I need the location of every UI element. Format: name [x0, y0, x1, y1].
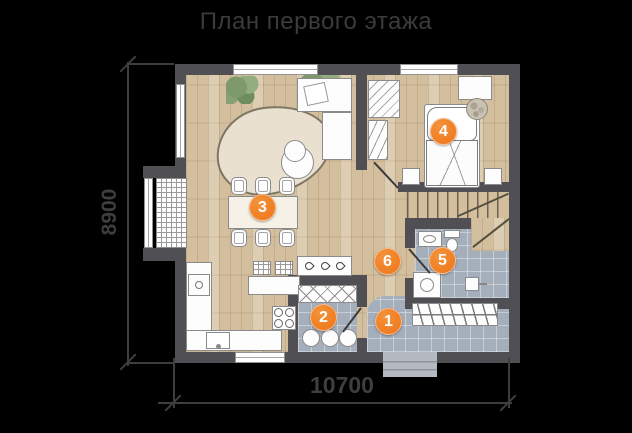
- bay-wall-top: [143, 166, 186, 178]
- dimension-label-width: 10700: [242, 372, 442, 399]
- kitchen-appliance: [188, 274, 210, 296]
- window-bottom-kitchen: [235, 352, 285, 363]
- desk-chair: [284, 140, 306, 162]
- room-marker-5: 5: [429, 247, 456, 274]
- room-marker-2-number: 2: [319, 309, 328, 327]
- dining-chair: [231, 177, 247, 195]
- boiler-tank: [302, 329, 320, 347]
- dried-plant-icon: [466, 98, 488, 120]
- appliance-knob-icon: [195, 281, 203, 289]
- wall-bathroom-left-a: [405, 218, 415, 248]
- sink-basin-icon: [423, 235, 436, 243]
- window-left: [176, 84, 185, 158]
- bay-wall-bottom: [143, 248, 186, 261]
- toilet-tank: [444, 230, 460, 238]
- desk-return: [322, 112, 352, 160]
- room-marker-3-number: 3: [258, 199, 267, 217]
- room-marker-2: 2: [310, 304, 337, 331]
- dimension-extension: [128, 63, 174, 65]
- faucet-icon: [216, 344, 221, 349]
- washing-machine: [413, 272, 441, 298]
- wall-right: [509, 64, 520, 363]
- bed-blanket: [426, 140, 478, 186]
- nightstand: [402, 168, 420, 185]
- gas-flame-icon: [319, 260, 330, 271]
- towel-rail: [465, 277, 479, 291]
- dining-chair: [279, 229, 295, 247]
- bay-window: [144, 178, 153, 248]
- wall-left-2: [175, 261, 186, 352]
- window-top-bedroom: [400, 64, 458, 75]
- dining-chair: [279, 177, 295, 195]
- dimension-line-horizontal: [158, 402, 512, 404]
- kitchen-sink: [206, 332, 230, 349]
- burner-icon: [274, 308, 283, 317]
- burner-icon: [274, 319, 283, 328]
- page-title: План первого этажа: [0, 8, 632, 36]
- dimension-line-vertical: [127, 62, 129, 366]
- boiler-tank: [321, 329, 339, 347]
- wall-living-bedroom-divider: [356, 64, 367, 170]
- gas-stove: [297, 256, 352, 276]
- room-marker-4: 4: [430, 118, 457, 145]
- wall-pantry-right-b: [357, 338, 367, 352]
- dining-chair: [255, 229, 271, 247]
- wall-bottom-2: [285, 352, 387, 363]
- dimension-extension: [173, 358, 175, 408]
- gas-flame-icon: [304, 260, 315, 271]
- room-marker-5-number: 5: [438, 252, 447, 270]
- room-marker-4-number: 4: [439, 123, 448, 141]
- bay-window-seat: [156, 178, 187, 248]
- burner-icon: [285, 308, 294, 317]
- pantry-shelving: [298, 285, 357, 303]
- floor-plan-screenshot: План первого этажа: [0, 0, 632, 433]
- plant-icon: [226, 76, 260, 104]
- kitchen-counter-bottom: [186, 330, 282, 351]
- bedroom-dresser: [368, 80, 400, 118]
- dimension-extension: [508, 358, 510, 408]
- room-marker-1-number: 1: [384, 313, 393, 331]
- dimension-label-height: 8900: [98, 172, 122, 252]
- window-top-living: [233, 64, 318, 75]
- cooktop-hob: [272, 306, 296, 330]
- nightstand: [484, 168, 502, 185]
- bathroom-sink: [418, 231, 442, 247]
- bar-stool: [275, 261, 293, 275]
- bedroom-cabinet: [458, 76, 492, 100]
- dimension-extension: [128, 362, 174, 364]
- gas-flame-icon: [334, 260, 345, 271]
- wall-pantry-right-a: [357, 275, 367, 307]
- room-marker-3: 3: [249, 194, 276, 221]
- kitchen-counter-mid: [248, 276, 300, 295]
- burner-icon: [285, 319, 294, 328]
- room-marker-1: 1: [375, 308, 402, 335]
- dining-chair: [255, 177, 271, 195]
- wall-bottom-1: [175, 352, 235, 363]
- bar-stool: [253, 261, 271, 275]
- dining-chair: [231, 229, 247, 247]
- towel-rail-stem: [479, 283, 487, 285]
- room-marker-6-number: 6: [383, 253, 392, 271]
- bedroom-wardrobe: [368, 120, 388, 160]
- coat-closet: [412, 303, 498, 326]
- kitchen-counter-left: [186, 262, 212, 331]
- washer-drum-icon: [420, 278, 434, 292]
- room-marker-6: 6: [374, 248, 401, 275]
